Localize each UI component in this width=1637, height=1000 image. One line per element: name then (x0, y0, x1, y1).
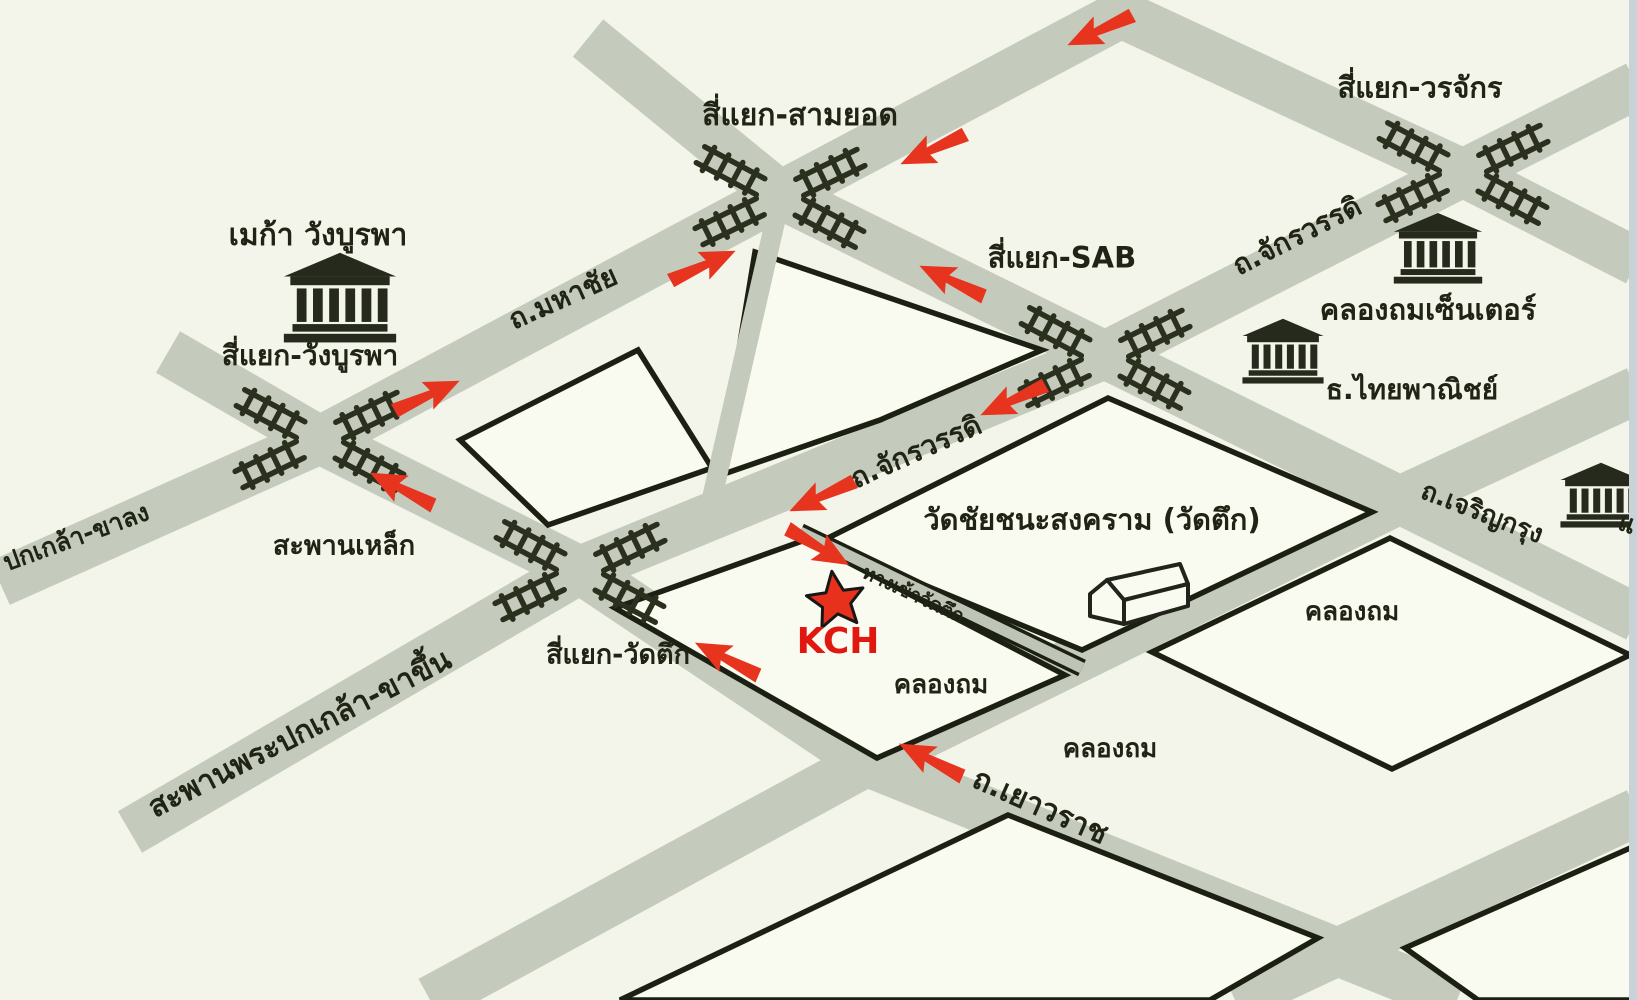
label-worachak: สี่แยก-วรจักร (1338, 74, 1503, 103)
label-sab: สี่แยก-SAB (988, 244, 1136, 273)
label-saphanlek: สะพานเหล็ก (273, 533, 415, 560)
label-jakrawat-north: ถ.จักรวรรดิ (1228, 192, 1365, 280)
label-jakrawat-south: ถ.จักรวรรดิ (846, 411, 985, 494)
label-yaowarat-rd: ถ.เยาวราช (968, 764, 1112, 850)
label-pokklao-up: สะพานพระปกเกล้า-ขาขึ้น (144, 645, 456, 824)
label-klongthom-3: คลองถม (1063, 736, 1158, 762)
label-scb-bank: ธ.ไทยพาณิชย์ (1326, 376, 1498, 404)
label-pokklao-down: ปกเกล้า-ขาลง (0, 499, 152, 575)
label-wattuek-junction: สี่แยก-วัดตึก (546, 642, 690, 669)
map-screenshot: สี่แยก-สามยอดสี่แยก-วรจักรเมก้า วังบูรพา… (0, 0, 1637, 1000)
label-charoenkrung-rd: ถ.เจริญกรุง (1417, 478, 1546, 548)
labels-layer: สี่แยก-สามยอดสี่แยก-วรจักรเมก้า วังบูรพา… (0, 0, 1637, 1000)
label-wat-chaichana: วัดชัยชนะสงคราม (วัดตึก) (923, 506, 1260, 535)
label-wangburapha: สี่แยก-วังบูรพา (222, 342, 399, 370)
label-klongthom-center: คลองถมเซ็นเตอร์ (1320, 296, 1537, 325)
label-klongthom-1: คลองถม (1305, 599, 1400, 625)
kch-label: KCH (797, 624, 880, 660)
label-entrance-wattuek: ทางเข้าวัดตึก (859, 563, 966, 626)
label-samyot: สี่แยก-สามยอด (702, 101, 898, 131)
label-edge-partial: แ (1615, 509, 1637, 539)
label-klongthom-2: คลองถม (894, 672, 989, 698)
label-mega-wangburapha: เมก้า วังบูรพา (229, 221, 408, 251)
label-mahachai-rd: ถ.มหาชัย (504, 262, 621, 335)
